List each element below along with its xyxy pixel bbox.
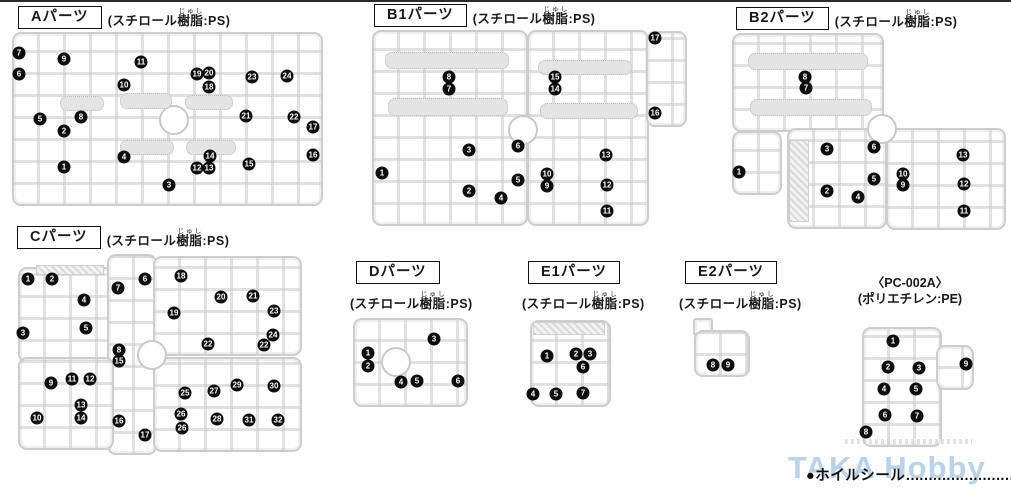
part-number-badge-c-32: 32	[272, 414, 285, 427]
part-number-badge-b1-16: 16	[649, 107, 662, 120]
part-number-badge-pc-5: 5	[910, 383, 923, 396]
part-number-badge-a-19: 19	[191, 68, 204, 81]
part-number-badge-a-6: 6	[13, 68, 26, 81]
wheel-seal-label: ●ホイルシール	[806, 468, 905, 484]
part-number-badge-pc-1: 1	[887, 335, 900, 348]
illegible-fine-print	[845, 439, 972, 444]
part-number-badge-c-15: 15	[113, 355, 126, 368]
part-number-badge-pc-4: 4	[878, 383, 891, 396]
part-number-badge-a-5: 5	[34, 113, 47, 126]
part-number-badge-c-22: 22	[202, 338, 215, 351]
part-number-badge-c-25: 25	[179, 387, 192, 400]
part-number-badge-c-28: 28	[211, 413, 224, 426]
part-number-badge-b1-6: 6	[512, 140, 525, 153]
part-number-badge-c-31: 31	[243, 414, 256, 427]
part-number-badge-b1-17: 17	[649, 32, 662, 45]
part-number-badge-b2-3: 3	[821, 143, 834, 156]
part-number-badge-b1-13: 13	[600, 149, 613, 162]
part-number-badge-a-2: 2	[58, 125, 71, 138]
part-number-badge-a-1: 1	[58, 161, 71, 174]
leader-dots: ……………………	[905, 468, 1011, 484]
part-number-badge-a-15: 15	[243, 158, 256, 171]
part-number-badge-c-18: 18	[175, 270, 188, 283]
part-number-badge-b1-7: 7	[443, 83, 456, 96]
part-number-badge-d-6: 6	[452, 375, 465, 388]
part-number-badge-b2-4: 4	[852, 191, 865, 204]
part-number-badge-c-22: 22	[258, 339, 271, 352]
part-number-badge-c-26: 26	[175, 408, 188, 421]
part-number-badge-d-3: 3	[428, 333, 441, 346]
part-number-badge-a-20: 20	[203, 67, 216, 80]
part-number-badge-e1-3: 3	[584, 348, 597, 361]
part-number-badge-b2-2: 2	[821, 185, 834, 198]
part-number-badge-c-11: 11	[66, 373, 79, 386]
part-number-badge-d-2: 2	[362, 360, 375, 373]
part-number-badge-b2-12: 12	[958, 178, 971, 191]
part-number-badge-pc-3: 3	[913, 362, 926, 375]
part-number-badge-e1-1: 1	[541, 350, 554, 363]
part-number-badge-e1-5: 5	[550, 388, 563, 401]
instruction-sheet-page: Aパーツ (スチロール樹脂じゅし:PS) B1パーツ (スチロール樹脂じゅし:P…	[0, 0, 1011, 488]
part-number-badge-e1-7: 7	[577, 387, 590, 400]
part-number-badge-a-13: 13	[203, 162, 216, 175]
part-number-badge-e1-6: 6	[577, 361, 590, 374]
part-number-badge-pc-6: 6	[879, 409, 892, 422]
part-number-badge-b2-6: 6	[868, 141, 881, 154]
part-number-badge-e1-2: 2	[570, 348, 583, 361]
part-number-badge-a-18: 18	[203, 81, 216, 94]
part-number-badge-a-3: 3	[163, 179, 176, 192]
part-number-badge-a-22: 22	[288, 111, 301, 124]
part-number-badge-b1-11: 11	[601, 205, 614, 218]
part-number-badge-b2-9: 9	[897, 179, 910, 192]
part-number-badge-c-1: 1	[22, 273, 35, 286]
part-number-badge-c-9: 9	[45, 377, 58, 390]
part-number-badge-a-8: 8	[75, 111, 88, 124]
part-number-badge-pc-8: 8	[860, 426, 873, 439]
part-number-badge-d-4: 4	[395, 376, 408, 389]
part-number-badge-b1-9: 9	[541, 180, 554, 193]
part-number-badge-c-27: 27	[208, 385, 221, 398]
part-number-badge-d-1: 1	[362, 347, 375, 360]
part-number-badge-b1-1: 1	[376, 167, 389, 180]
part-number-badge-c-3: 3	[17, 327, 30, 340]
part-number-badge-a-21: 21	[240, 110, 253, 123]
part-number-badge-b2-7: 7	[800, 82, 813, 95]
part-number-badge-a-9: 9	[58, 53, 71, 66]
part-number-badge-c-13: 13	[75, 399, 88, 412]
part-number-badge-b2-1: 1	[733, 166, 746, 179]
part-number-badge-c-12: 12	[84, 373, 97, 386]
part-number-badge-c-10: 10	[31, 412, 44, 425]
part-number-badge-c-5: 5	[80, 322, 93, 335]
part-number-badge-b1-4: 4	[495, 192, 508, 205]
part-number-badge-c-4: 4	[78, 294, 91, 307]
wheel-seal-line: ●ホイルシール……………………1	[806, 464, 1011, 485]
part-number-badge-a-7: 7	[13, 47, 26, 60]
part-number-badge-c-21: 21	[247, 290, 260, 303]
part-number-badge-d-5: 5	[411, 375, 424, 388]
part-number-badge-b1-12: 12	[601, 179, 614, 192]
part-number-badge-a-24: 24	[281, 70, 294, 83]
part-number-badge-b1-5: 5	[512, 174, 525, 187]
part-number-badge-c-17: 17	[139, 429, 152, 442]
part-number-badge-e2-9: 9	[722, 359, 735, 372]
part-number-badge-c-19: 19	[168, 307, 181, 320]
part-number-badge-a-14: 14	[204, 150, 217, 163]
part-number-badge-b2-5: 5	[868, 173, 881, 186]
part-number-badge-b2-11: 11	[958, 205, 971, 218]
part-number-badge-c-26: 26	[176, 422, 189, 435]
part-number-badge-a-17: 17	[307, 121, 320, 134]
part-number-badge-c-16: 16	[113, 415, 126, 428]
part-number-badge-b1-3: 3	[463, 144, 476, 157]
part-number-badge-c-7: 7	[112, 282, 125, 295]
part-number-badge-b2-13: 13	[957, 149, 970, 162]
part-number-badge-a-10: 10	[118, 79, 131, 92]
part-number-badge-a-11: 11	[135, 56, 148, 69]
part-number-badge-b1-2: 2	[463, 185, 476, 198]
part-number-badge-c-20: 20	[215, 291, 228, 304]
part-number-badge-a-16: 16	[307, 149, 320, 162]
part-number-badge-pc-2: 2	[882, 361, 895, 374]
part-number-badge-pc-7: 7	[911, 410, 924, 423]
part-number-badge-e2-8: 8	[707, 359, 720, 372]
part-number-badge-b1-14: 14	[549, 83, 562, 96]
part-number-badge-c-2: 2	[46, 273, 59, 286]
badges-layer: 7911192023246101858212217241416112131538…	[0, 0, 1011, 488]
part-number-badge-c-30: 30	[268, 380, 281, 393]
part-number-badge-a-23: 23	[246, 71, 259, 84]
part-number-badge-e1-4: 4	[527, 388, 540, 401]
part-number-badge-c-23: 23	[268, 305, 281, 318]
part-number-badge-c-29: 29	[231, 379, 244, 392]
part-number-badge-c-6: 6	[139, 273, 152, 286]
part-number-badge-pc-9: 9	[960, 358, 973, 371]
part-number-badge-a-4: 4	[118, 151, 131, 164]
part-number-badge-c-14: 14	[75, 412, 88, 425]
